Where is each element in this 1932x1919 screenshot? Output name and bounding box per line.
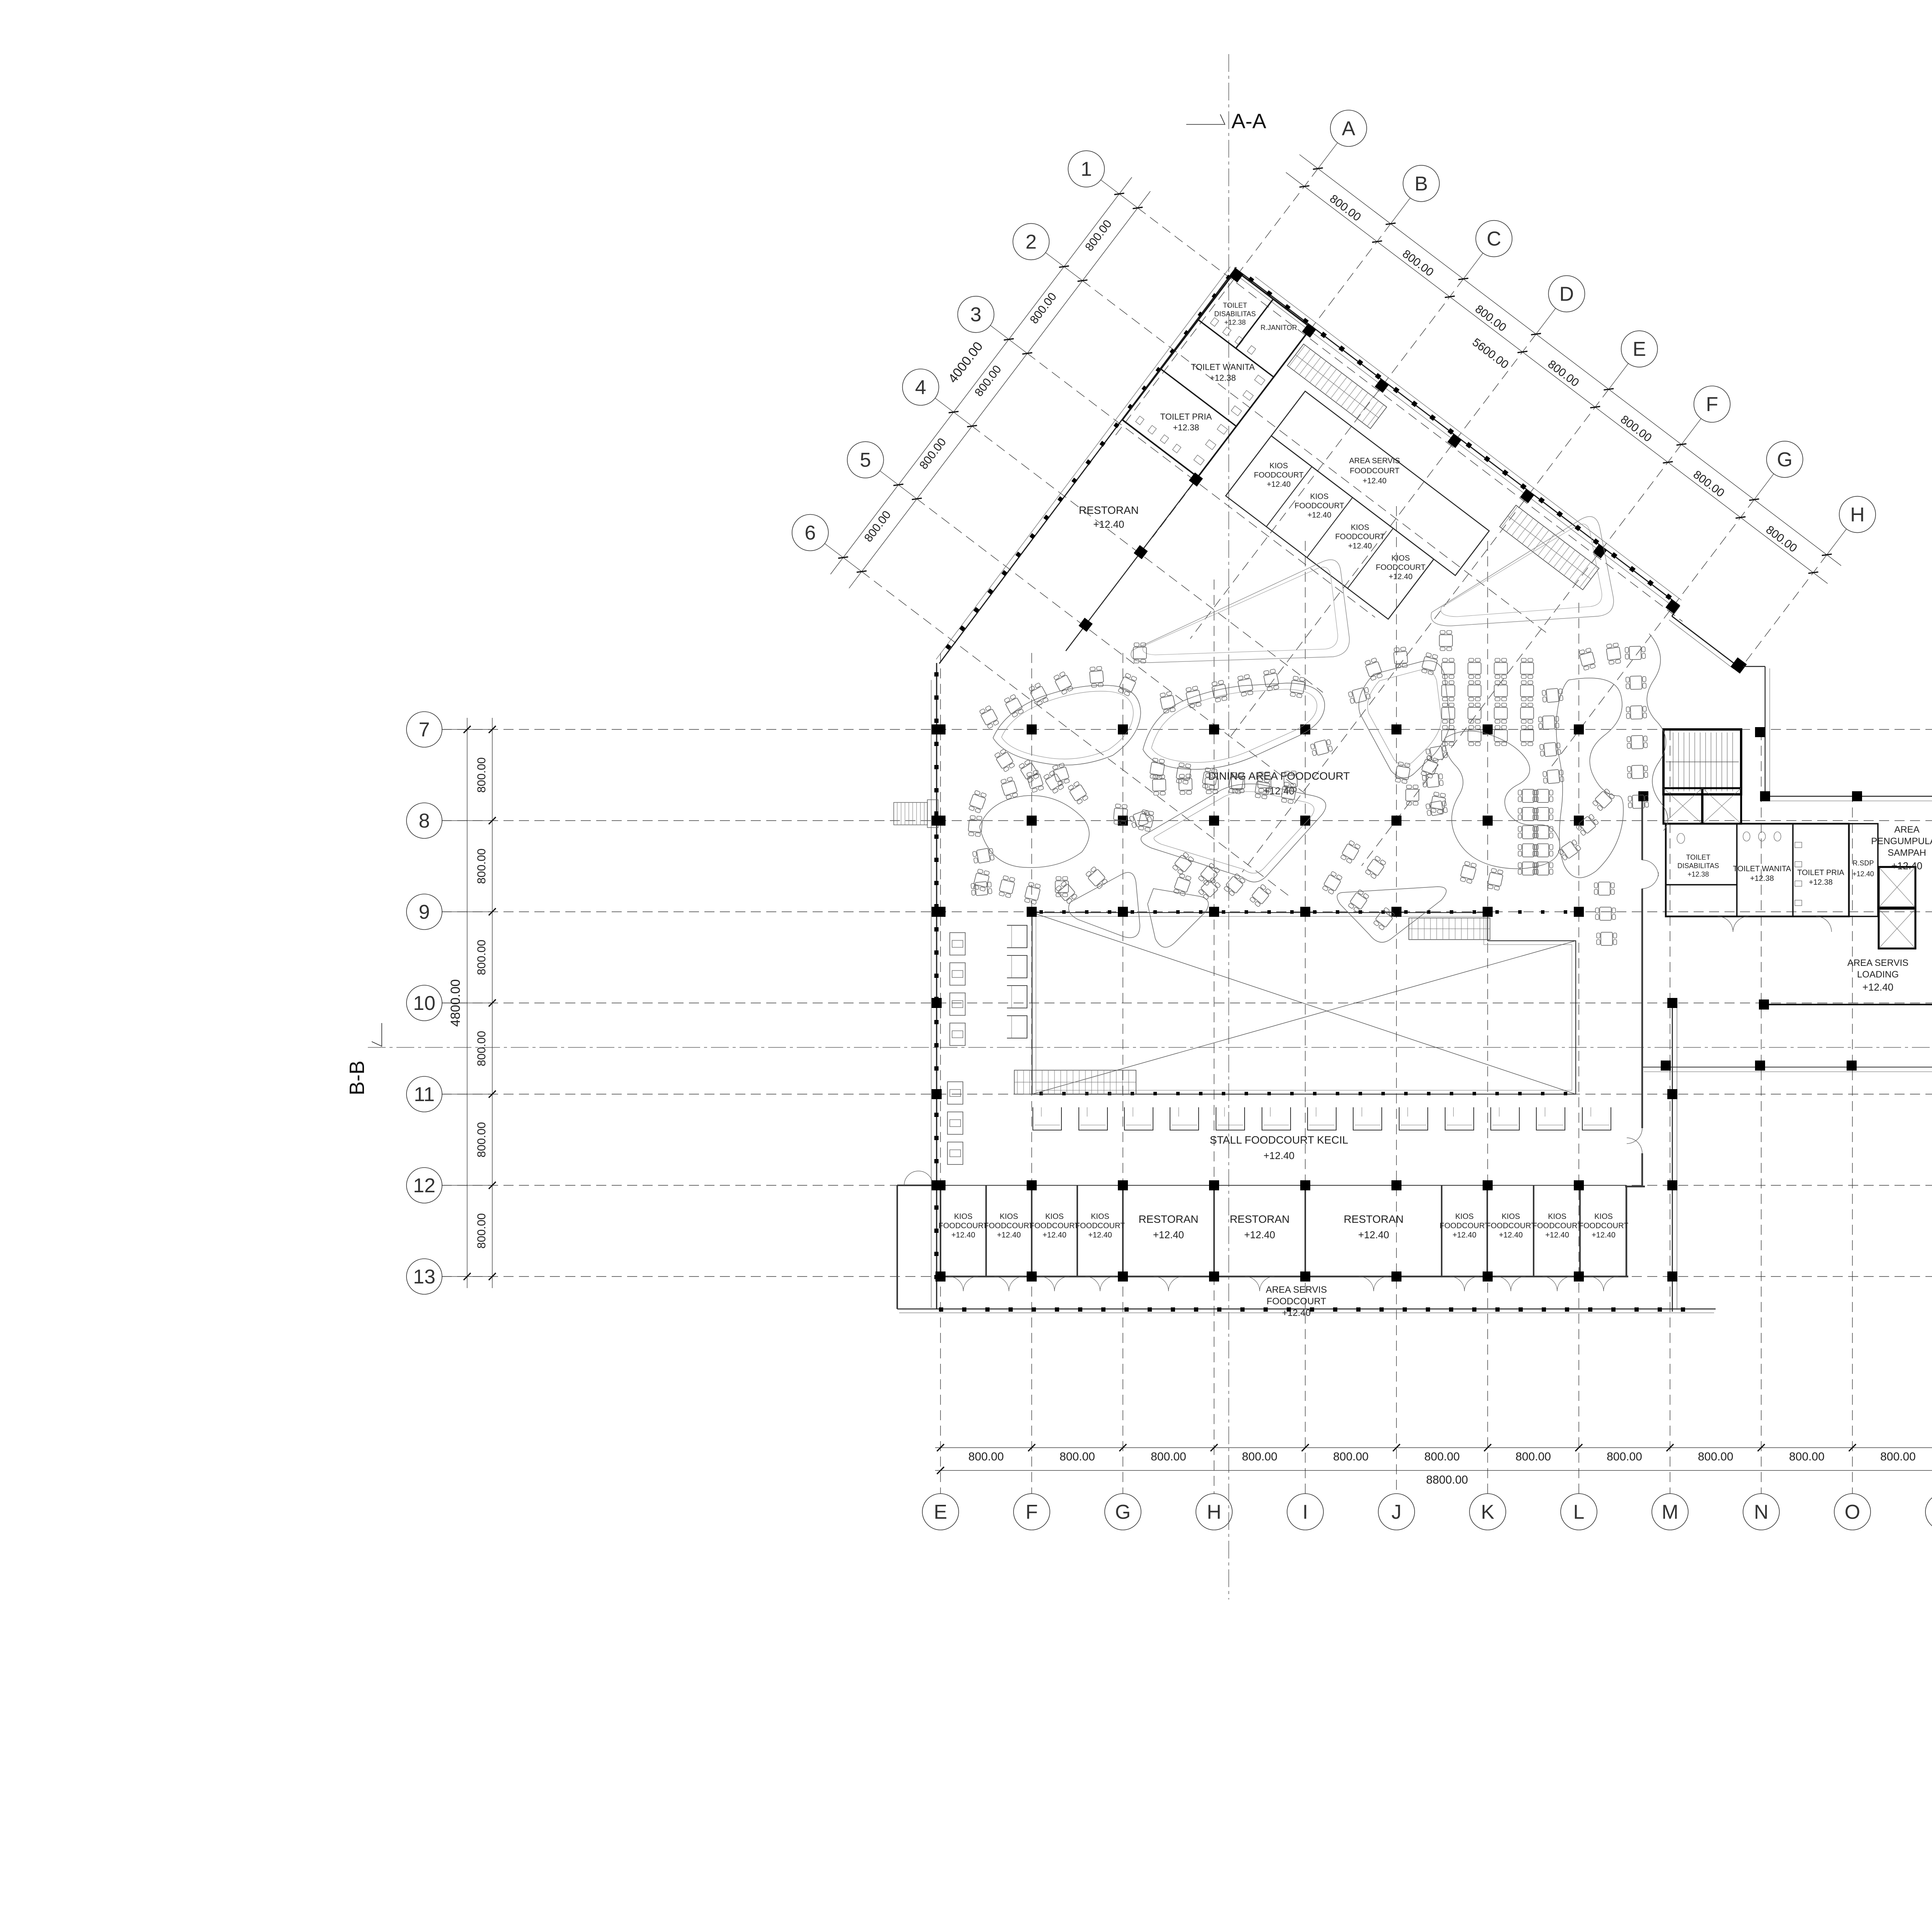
svg-text:800.00: 800.00 bbox=[968, 1450, 1004, 1463]
svg-text:E: E bbox=[1633, 338, 1646, 360]
svg-text:+12.38: +12.38 bbox=[1687, 870, 1709, 878]
svg-text:+12.38: +12.38 bbox=[1224, 318, 1246, 326]
svg-text:FOODCOURT: FOODCOURT bbox=[1579, 1222, 1629, 1230]
svg-text:+12.40: +12.40 bbox=[951, 1231, 975, 1239]
svg-text:FOODCOURT: FOODCOURT bbox=[1294, 502, 1344, 510]
svg-text:KIOS: KIOS bbox=[1351, 523, 1369, 532]
svg-text:TOILET WANITA: TOILET WANITA bbox=[1191, 362, 1255, 372]
svg-text:J: J bbox=[1391, 1501, 1401, 1523]
svg-text:4: 4 bbox=[915, 376, 926, 399]
svg-text:FOODCOURT: FOODCOURT bbox=[1486, 1222, 1536, 1230]
svg-text:DISABILITAS: DISABILITAS bbox=[1214, 310, 1256, 318]
svg-text:TOILET WANITA: TOILET WANITA bbox=[1733, 865, 1791, 873]
svg-text:+12.40: +12.40 bbox=[1545, 1231, 1569, 1239]
svg-text:E: E bbox=[934, 1501, 947, 1523]
svg-text:L: L bbox=[1573, 1501, 1585, 1523]
svg-text:D: D bbox=[1560, 283, 1574, 305]
svg-text:AREA SERVIS: AREA SERVIS bbox=[1847, 958, 1908, 968]
svg-text:800.00: 800.00 bbox=[475, 1122, 488, 1158]
svg-text:TOILET: TOILET bbox=[1686, 853, 1711, 861]
svg-text:FOODCOURT: FOODCOURT bbox=[1254, 471, 1304, 479]
svg-text:N: N bbox=[1754, 1501, 1769, 1523]
svg-text:800.00: 800.00 bbox=[475, 1213, 488, 1249]
svg-text:800.00: 800.00 bbox=[1789, 1450, 1825, 1463]
svg-text:B: B bbox=[1415, 173, 1428, 195]
svg-text:1: 1 bbox=[1081, 158, 1092, 180]
svg-text:+12.40: +12.40 bbox=[1093, 518, 1124, 530]
svg-text:G: G bbox=[1115, 1501, 1131, 1523]
svg-text:FOODCOURT: FOODCOURT bbox=[1532, 1222, 1582, 1230]
svg-text:FOODCOURT: FOODCOURT bbox=[984, 1222, 1034, 1230]
svg-text:800.00: 800.00 bbox=[475, 1031, 488, 1066]
svg-text:AREA SERVIS: AREA SERVIS bbox=[1266, 1285, 1327, 1295]
svg-text:A: A bbox=[1342, 117, 1355, 140]
svg-text:+12.38: +12.38 bbox=[1173, 423, 1199, 432]
svg-text:+12.40: +12.40 bbox=[1389, 573, 1413, 581]
svg-text:KIOS: KIOS bbox=[1548, 1212, 1566, 1221]
svg-text:I: I bbox=[1303, 1501, 1308, 1523]
svg-text:FOODCOURT: FOODCOURT bbox=[1267, 1296, 1327, 1307]
svg-text:KIOS: KIOS bbox=[1045, 1212, 1064, 1221]
svg-text:800.00: 800.00 bbox=[1333, 1450, 1369, 1463]
svg-text:+12.40: +12.40 bbox=[1088, 1231, 1112, 1239]
svg-text:800.00: 800.00 bbox=[1151, 1450, 1186, 1463]
svg-text:AREA: AREA bbox=[1894, 824, 1919, 835]
svg-text:KIOS: KIOS bbox=[1269, 462, 1288, 470]
svg-text:TOILET PRIA: TOILET PRIA bbox=[1797, 869, 1844, 877]
svg-text:+12.40: +12.40 bbox=[1348, 542, 1372, 550]
svg-text:FOODCOURT: FOODCOURT bbox=[1075, 1222, 1125, 1230]
svg-text:+12.38: +12.38 bbox=[1750, 874, 1774, 883]
svg-text:800.00: 800.00 bbox=[1880, 1450, 1916, 1463]
svg-text:F: F bbox=[1026, 1501, 1038, 1523]
svg-text:LOADING: LOADING bbox=[1857, 969, 1899, 980]
svg-text:F: F bbox=[1706, 393, 1718, 416]
svg-text:800.00: 800.00 bbox=[1242, 1450, 1277, 1463]
svg-text:+12.40: +12.40 bbox=[997, 1231, 1021, 1239]
svg-text:+12.40: +12.40 bbox=[1043, 1231, 1066, 1239]
svg-text:+12.40: +12.40 bbox=[1282, 1308, 1311, 1318]
svg-text:K: K bbox=[1481, 1501, 1495, 1523]
svg-text:+12.40: +12.40 bbox=[1267, 480, 1291, 489]
svg-text:R.JANITOR: R.JANITOR bbox=[1260, 324, 1297, 331]
svg-text:4800.00: 4800.00 bbox=[448, 979, 463, 1027]
svg-text:800.00: 800.00 bbox=[1515, 1450, 1551, 1463]
svg-text:7: 7 bbox=[419, 719, 430, 741]
svg-text:8800.00: 8800.00 bbox=[1426, 1474, 1468, 1486]
svg-text:+12.40: +12.40 bbox=[1891, 860, 1922, 872]
svg-text:TOILET PRIA: TOILET PRIA bbox=[1160, 412, 1212, 422]
svg-text:3: 3 bbox=[970, 304, 981, 326]
svg-text:12: 12 bbox=[413, 1175, 435, 1197]
svg-text:KIOS: KIOS bbox=[1455, 1212, 1474, 1221]
svg-text:AREA SERVIS: AREA SERVIS bbox=[1349, 457, 1400, 465]
svg-text:+12.38: +12.38 bbox=[1210, 373, 1236, 383]
svg-text:FOODCOURT: FOODCOURT bbox=[939, 1222, 988, 1230]
svg-text:8: 8 bbox=[419, 810, 430, 832]
svg-text:DISABILITAS: DISABILITAS bbox=[1677, 862, 1719, 870]
svg-text:H: H bbox=[1207, 1501, 1221, 1523]
svg-text:RESTORAN: RESTORAN bbox=[1344, 1213, 1403, 1225]
svg-text:C: C bbox=[1487, 228, 1502, 250]
svg-text:11: 11 bbox=[414, 1083, 435, 1106]
svg-text:KIOS: KIOS bbox=[1000, 1212, 1018, 1221]
svg-text:M: M bbox=[1662, 1501, 1678, 1523]
svg-text:H: H bbox=[1850, 504, 1865, 526]
svg-text:B-B: B-B bbox=[345, 1061, 369, 1095]
svg-text:TOILET: TOILET bbox=[1223, 301, 1247, 309]
svg-text:FOODCOURT: FOODCOURT bbox=[1350, 467, 1400, 475]
svg-text:KIOS: KIOS bbox=[1594, 1212, 1613, 1221]
svg-text:RESTORAN: RESTORAN bbox=[1079, 504, 1139, 516]
svg-text:+12.40: +12.40 bbox=[1592, 1231, 1616, 1239]
svg-text:RESTORAN: RESTORAN bbox=[1138, 1213, 1198, 1225]
svg-text:+12.40: +12.40 bbox=[1244, 1229, 1275, 1241]
svg-text:800.00: 800.00 bbox=[1060, 1450, 1095, 1463]
svg-text:10: 10 bbox=[413, 992, 435, 1015]
svg-text:FOODCOURT: FOODCOURT bbox=[1440, 1222, 1490, 1230]
svg-text:SAMPAH: SAMPAH bbox=[1888, 848, 1926, 858]
svg-text:5: 5 bbox=[860, 449, 871, 471]
svg-text:800.00: 800.00 bbox=[475, 848, 488, 884]
svg-text:+12.38: +12.38 bbox=[1809, 878, 1833, 887]
svg-text:800.00: 800.00 bbox=[1698, 1450, 1733, 1463]
svg-text:+12.40: +12.40 bbox=[1358, 1229, 1389, 1241]
svg-text:800.00: 800.00 bbox=[475, 757, 488, 793]
svg-text:13: 13 bbox=[413, 1266, 435, 1288]
svg-text:+12.40: +12.40 bbox=[1264, 1150, 1294, 1161]
svg-text:R.SDP: R.SDP bbox=[1852, 859, 1874, 867]
svg-text:+12.40: +12.40 bbox=[1153, 1229, 1184, 1241]
svg-text:2: 2 bbox=[1026, 231, 1037, 253]
svg-text:PENGUMPULAN: PENGUMPULAN bbox=[1871, 836, 1932, 846]
svg-text:KIOS: KIOS bbox=[954, 1212, 973, 1221]
svg-text:+12.40: +12.40 bbox=[1452, 1231, 1476, 1239]
svg-text:6: 6 bbox=[804, 522, 816, 544]
svg-text:KIOS: KIOS bbox=[1310, 493, 1329, 501]
svg-text:9: 9 bbox=[419, 901, 430, 923]
svg-text:RESTORAN: RESTORAN bbox=[1230, 1213, 1289, 1225]
svg-text:KIOS: KIOS bbox=[1502, 1212, 1520, 1221]
svg-text:O: O bbox=[1845, 1501, 1860, 1523]
svg-text:800.00: 800.00 bbox=[1607, 1450, 1642, 1463]
svg-text:FOODCOURT: FOODCOURT bbox=[1335, 532, 1385, 541]
svg-text:FOODCOURT: FOODCOURT bbox=[1376, 563, 1426, 572]
svg-text:800.00: 800.00 bbox=[475, 940, 488, 975]
svg-text:FOODCOURT: FOODCOURT bbox=[1030, 1222, 1080, 1230]
svg-text:STALL FOODCOURT KECIL: STALL FOODCOURT KECIL bbox=[1210, 1134, 1348, 1146]
svg-text:+12.40: +12.40 bbox=[1363, 477, 1387, 485]
svg-text:KIOS: KIOS bbox=[1391, 554, 1410, 563]
svg-text:G: G bbox=[1777, 449, 1793, 471]
svg-text:+12.40: +12.40 bbox=[1852, 870, 1874, 878]
svg-text:+12.40: +12.40 bbox=[1308, 511, 1332, 520]
svg-text:KIOS: KIOS bbox=[1091, 1212, 1109, 1221]
svg-text:+12.40: +12.40 bbox=[1862, 981, 1893, 993]
svg-text:+12.40: +12.40 bbox=[1499, 1231, 1523, 1239]
svg-text:A-A: A-A bbox=[1231, 110, 1266, 133]
svg-text:DINING AREA FOODCOURT: DINING AREA FOODCOURT bbox=[1208, 770, 1350, 782]
svg-text:800.00: 800.00 bbox=[1424, 1450, 1460, 1463]
